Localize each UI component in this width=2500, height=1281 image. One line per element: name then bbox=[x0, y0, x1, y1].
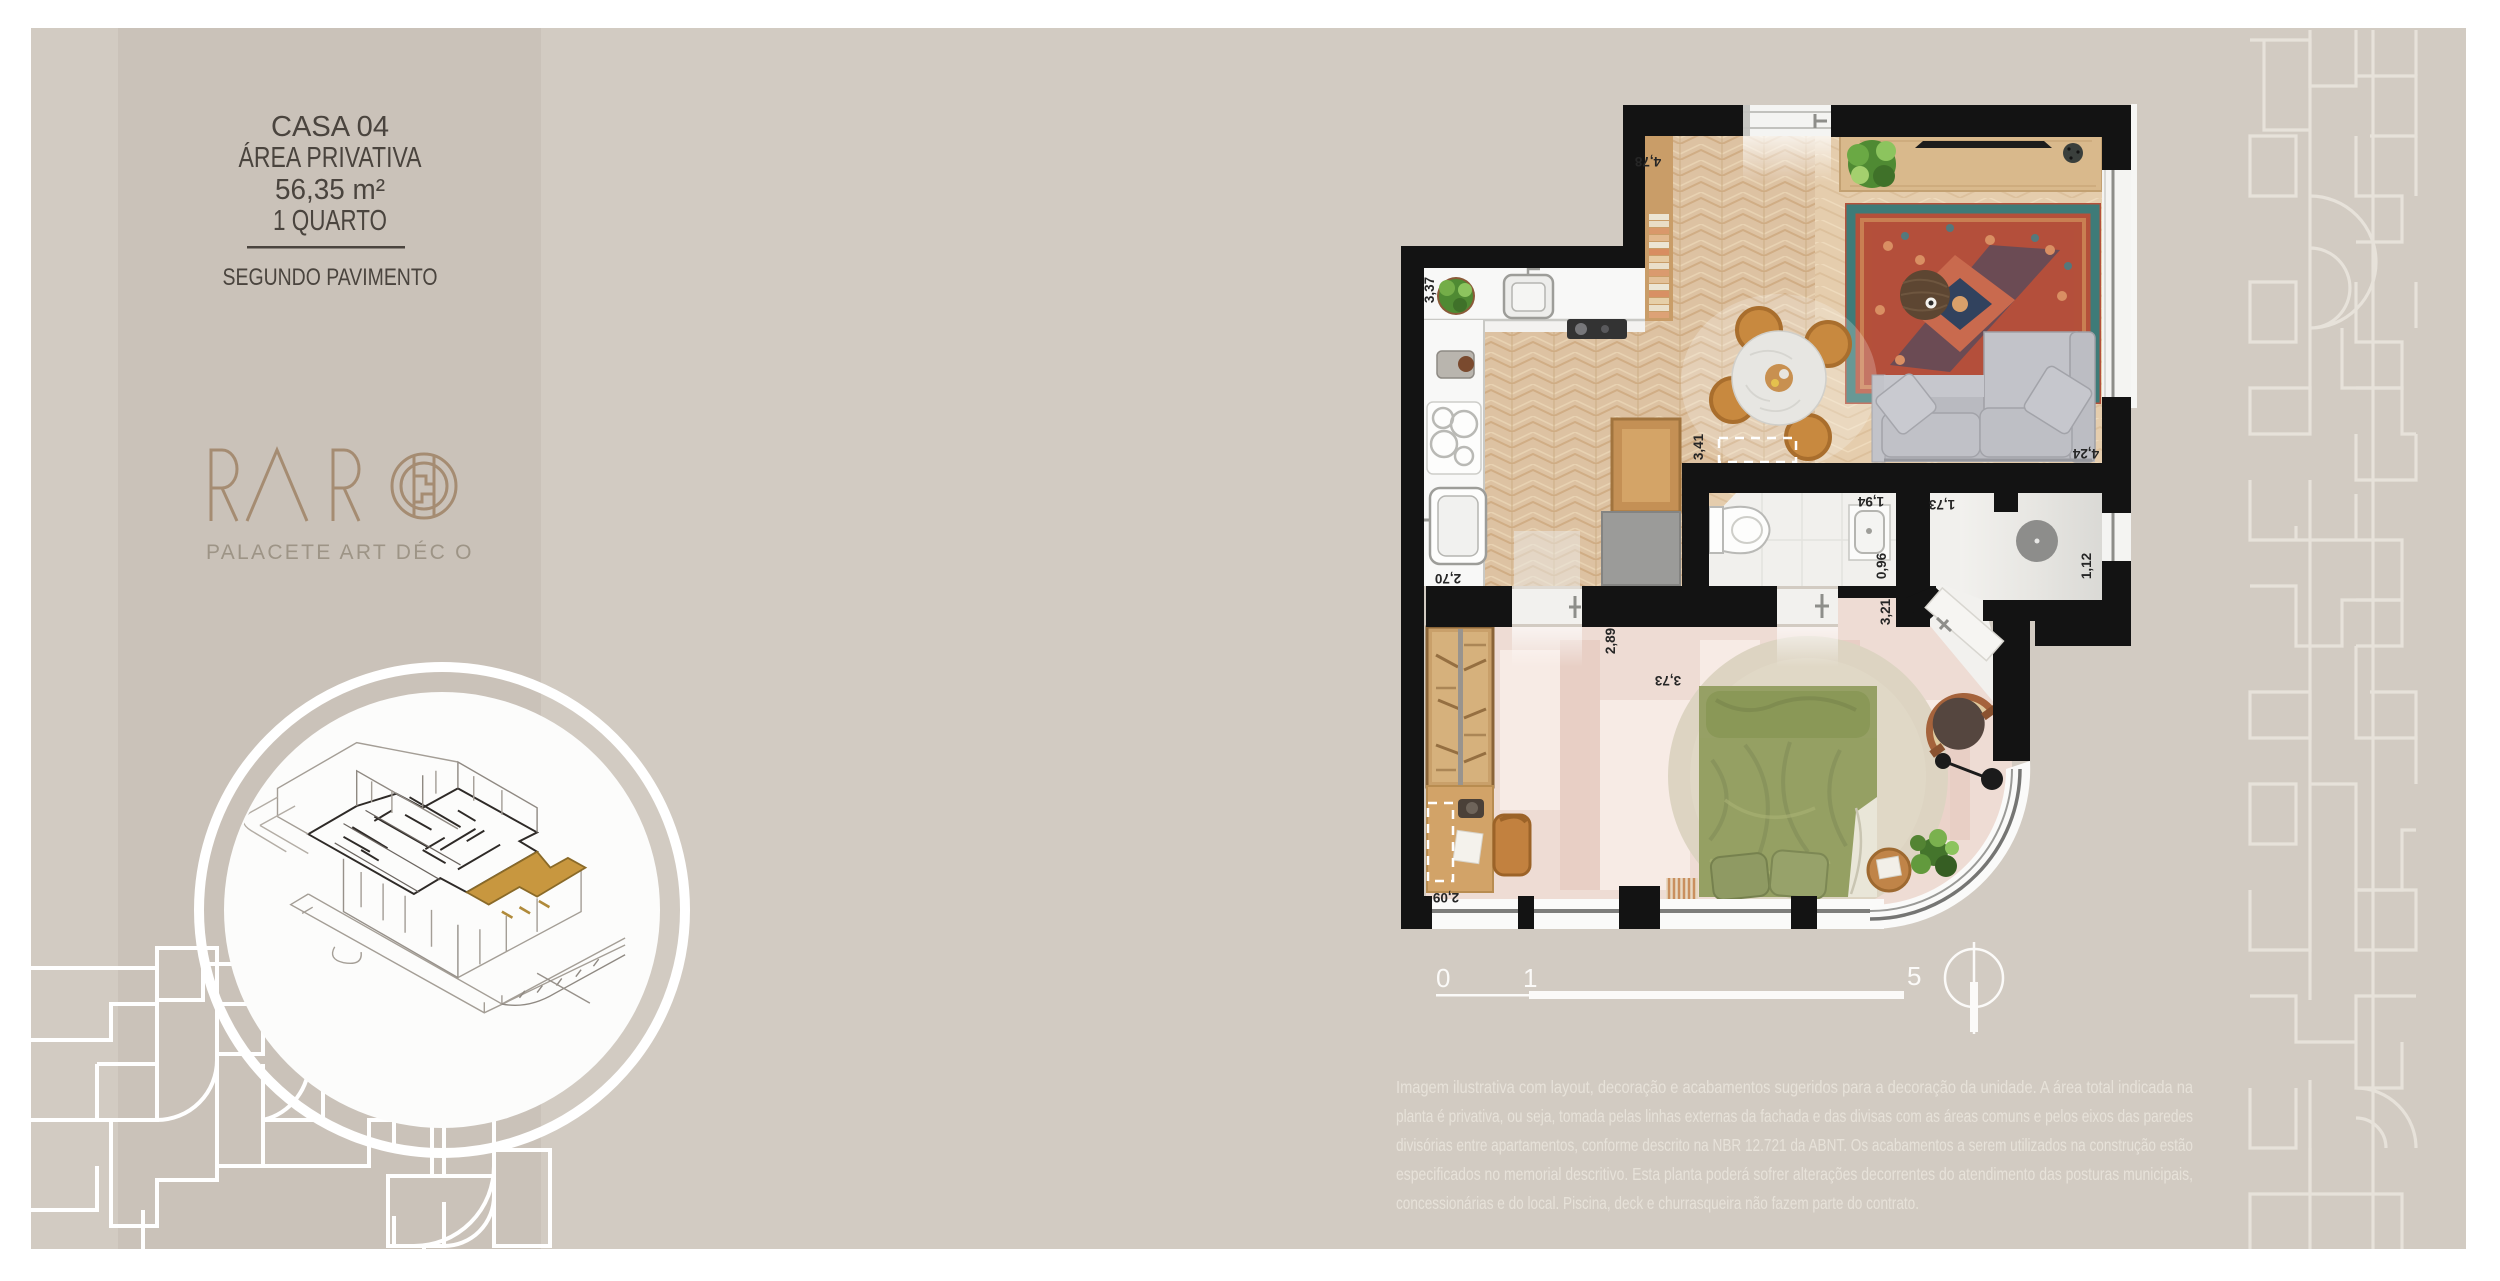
svg-text:56,35 m²: 56,35 m² bbox=[275, 174, 385, 206]
svg-text:divisórias entre apartamentos,: divisórias entre apartamentos, conforme … bbox=[1396, 1135, 2193, 1155]
svg-text:concessionárias e do local. Pi: concessionárias e do local. Piscina, dec… bbox=[1396, 1193, 1919, 1213]
svg-text:SEGUNDO PAVIMENTO: SEGUNDO PAVIMENTO bbox=[223, 264, 438, 291]
svg-text:ÁREA PRIVATIVA: ÁREA PRIVATIVA bbox=[239, 141, 423, 174]
svg-text:PALACETE ART DÉC O: PALACETE ART DÉC O bbox=[206, 541, 474, 564]
svg-text:4,24: 4,24 bbox=[2072, 446, 2099, 461]
svg-text:especificados no memorial desc: especificados no memorial descritivo. Es… bbox=[1396, 1164, 2193, 1184]
svg-text:0,96: 0,96 bbox=[1874, 552, 1889, 579]
svg-text:2,70: 2,70 bbox=[1435, 571, 1461, 586]
svg-text:3,21: 3,21 bbox=[1878, 598, 1893, 625]
svg-text:1,94: 1,94 bbox=[1857, 494, 1884, 509]
svg-text:5: 5 bbox=[1907, 961, 1921, 991]
svg-text:0: 0 bbox=[1436, 963, 1450, 993]
svg-text:2,89: 2,89 bbox=[1603, 628, 1618, 654]
svg-text:planta é privativa, ou seja, t: planta é privativa, ou seja, tomada pela… bbox=[1396, 1106, 2193, 1126]
svg-text:1,73: 1,73 bbox=[1928, 497, 1955, 512]
svg-text:4,78: 4,78 bbox=[1634, 154, 1661, 169]
svg-text:1 QUARTO: 1 QUARTO bbox=[273, 205, 387, 237]
svg-text:3,41: 3,41 bbox=[1691, 433, 1706, 460]
svg-text:CASA 04: CASA 04 bbox=[271, 111, 389, 143]
svg-text:1: 1 bbox=[1523, 963, 1537, 993]
svg-text:3,37: 3,37 bbox=[1422, 277, 1437, 303]
svg-text:1,12: 1,12 bbox=[2079, 553, 2094, 579]
svg-text:2,09: 2,09 bbox=[1433, 890, 1459, 905]
svg-text:Imagem ilustrativa com layout,: Imagem ilustrativa com layout, decoração… bbox=[1396, 1077, 2193, 1097]
svg-text:3,73: 3,73 bbox=[1654, 673, 1681, 688]
